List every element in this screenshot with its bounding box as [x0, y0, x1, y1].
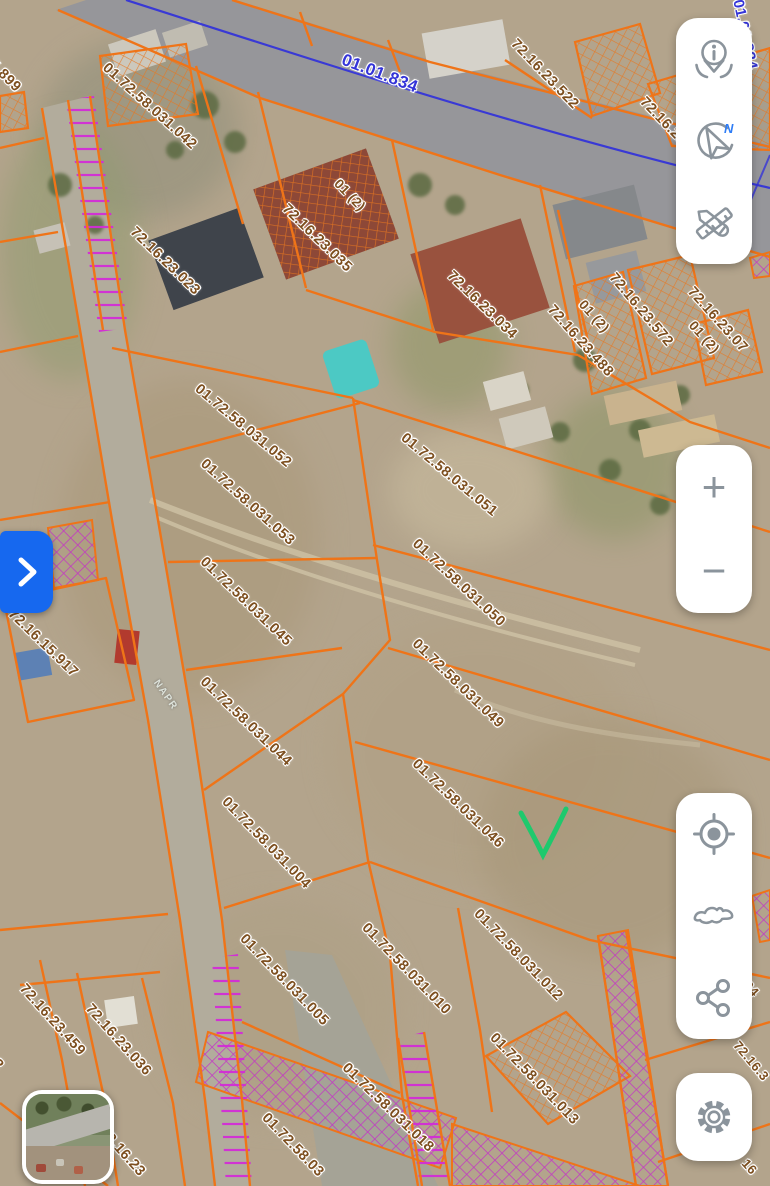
gear-icon [691, 1094, 737, 1140]
target-icon [690, 810, 738, 858]
minus-icon: − [702, 550, 727, 592]
chevron-right-icon [10, 550, 44, 594]
plus-icon: + [702, 466, 727, 508]
expand-sidebar-button[interactable] [0, 531, 53, 613]
thumb-roof [56, 1159, 64, 1166]
map-canvas[interactable]: 01.01.834 01.01.834 NAPR 72.16.15.89901.… [0, 0, 770, 1186]
compass-button[interactable]: N [682, 109, 746, 173]
tool-panel-top: N [676, 18, 752, 264]
basemap-thumbnail[interactable] [22, 1090, 114, 1184]
zoom-out-button[interactable]: − [682, 539, 746, 603]
dirt-trail [150, 500, 700, 745]
georgia-outline-icon [690, 892, 738, 940]
share-icon [690, 974, 738, 1022]
thumb-field [26, 1146, 110, 1180]
cadastre-layer [0, 0, 770, 1186]
share-button[interactable] [682, 966, 746, 1030]
settings-panel [676, 1073, 752, 1161]
compass-north-icon: N [690, 117, 738, 165]
thumb-roof [74, 1166, 83, 1174]
north-label: N [724, 121, 734, 136]
zoom-in-button[interactable]: + [682, 455, 746, 519]
measure-tools-icon [690, 199, 738, 247]
zoom-panel: + − [676, 445, 752, 613]
measure-button[interactable] [682, 191, 746, 255]
thumb-roof [36, 1164, 46, 1172]
locate-button[interactable] [682, 802, 746, 866]
info-button[interactable] [682, 27, 746, 91]
info-pin-icon [690, 35, 738, 83]
settings-button[interactable] [682, 1085, 746, 1149]
tool-panel-bottom [676, 793, 752, 1039]
region-button[interactable] [682, 884, 746, 948]
selection-checkmark [521, 809, 566, 855]
main-road [56, 0, 770, 258]
